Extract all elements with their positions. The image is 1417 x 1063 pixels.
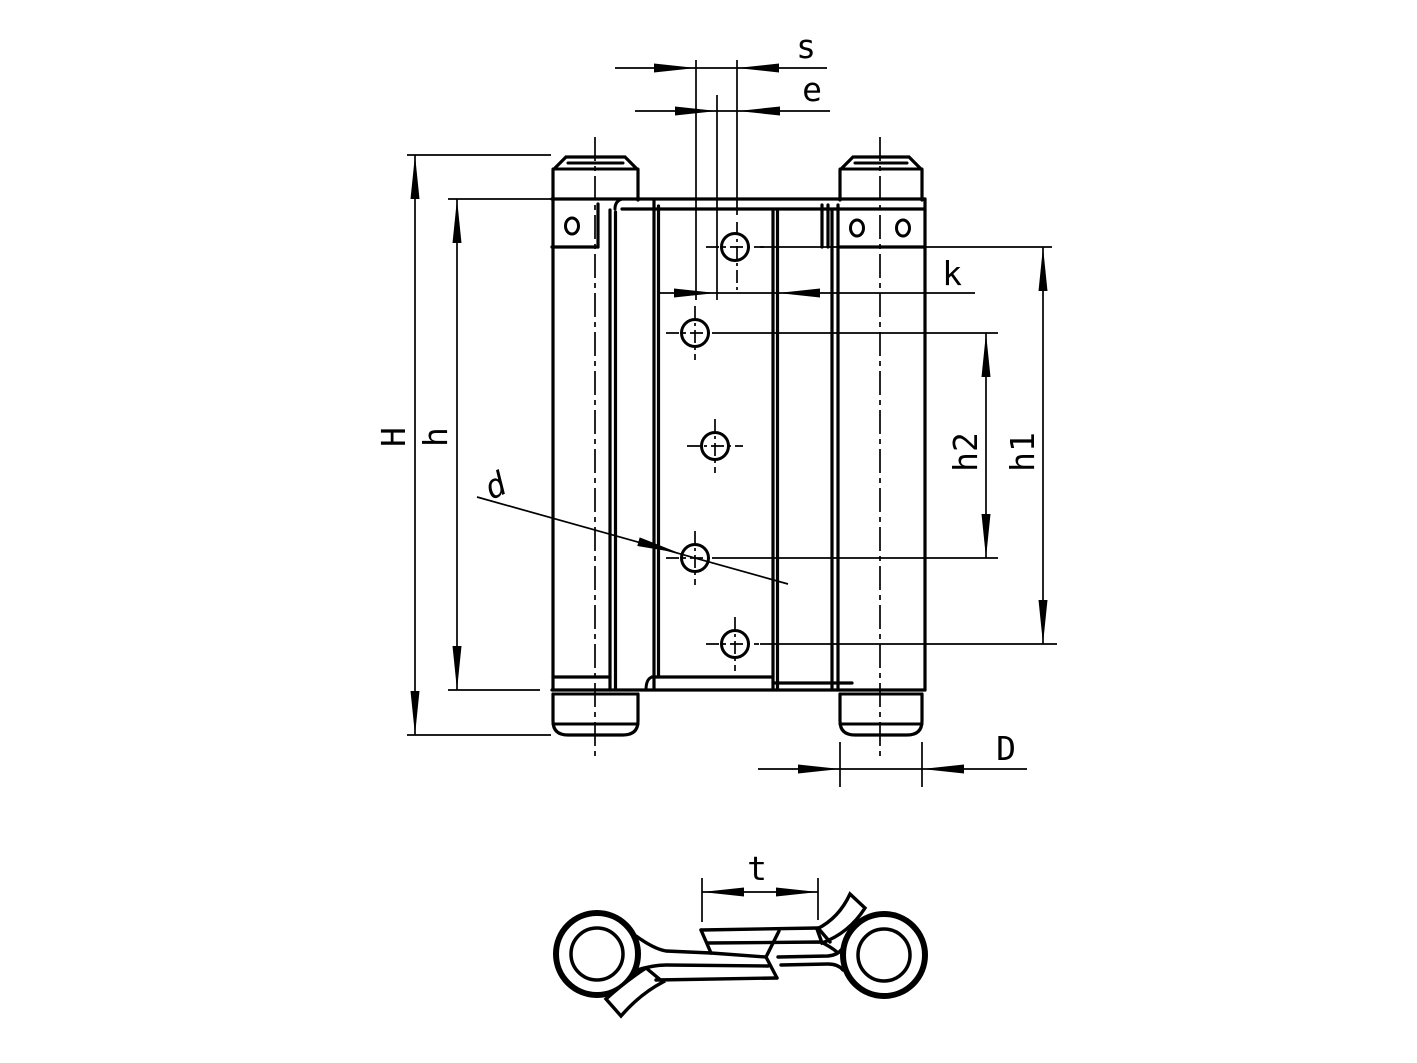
dimension-H-label: H [374,427,413,447]
section-right-barrel-bore [858,929,910,981]
dimension-e-label: e [802,70,822,109]
dimension-k-label: k [942,254,962,293]
dimension-h-label: h [416,427,455,447]
dimension-D-label: D [996,729,1016,768]
dimension-s-label: s [796,27,816,66]
dimension-h1-label: h1 [1003,432,1042,472]
dimension-t-label: t [747,849,767,888]
technical-drawing-page: s e k H [0,0,1417,1063]
dimension-h2-label: h2 [946,432,985,472]
section-left-barrel-bore [571,928,623,980]
drawing-background [0,0,1417,1063]
hinge-technical-drawing: s e k H [0,0,1417,1063]
